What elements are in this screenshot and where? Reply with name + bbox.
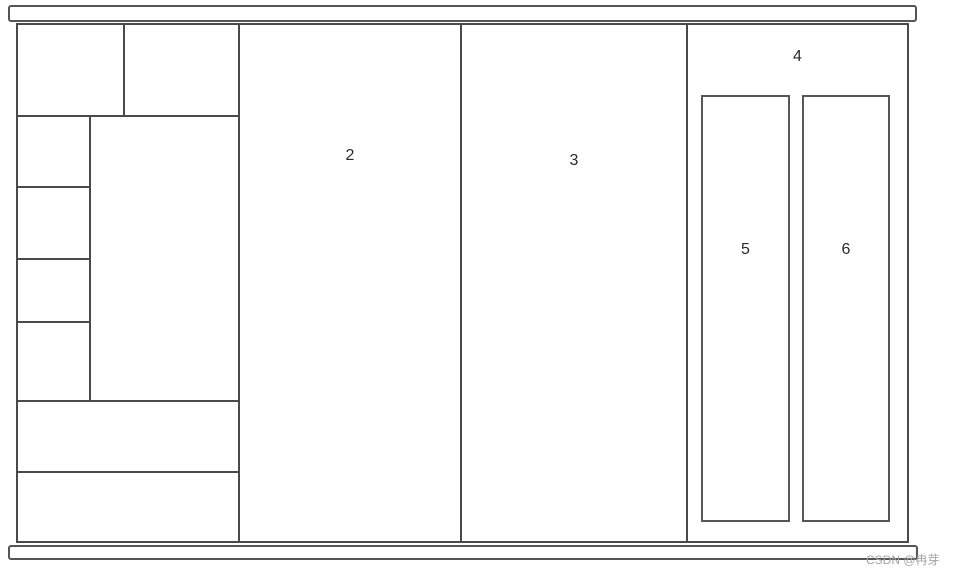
column-6-label: 6 (802, 242, 890, 258)
inner-column-6 (802, 95, 890, 522)
region-3-label: 3 (460, 153, 688, 169)
top-rail (8, 5, 917, 22)
shelf-box-2 (16, 186, 91, 260)
shelf-box-1 (16, 115, 91, 188)
region-2-panel (238, 23, 462, 543)
layout-diagram: 2 3 4 5 6 CSDN @冉芽 (0, 0, 957, 575)
shelf-box-3 (16, 258, 91, 323)
shelf-box-4 (16, 321, 91, 402)
column-5-label: 5 (701, 242, 790, 258)
region-2-label: 2 (238, 148, 462, 164)
region-4-label: 4 (686, 49, 909, 65)
region-3-panel (460, 23, 688, 543)
compartment-top-left (16, 23, 125, 117)
compartment-top-right (123, 23, 240, 117)
drawer-strip-2 (16, 471, 240, 543)
inner-column-5 (701, 95, 790, 522)
watermark-text: CSDN @冉芽 (866, 551, 940, 568)
drawer-strip-1 (16, 400, 240, 473)
bottom-rail (8, 545, 918, 560)
compartment-large (89, 115, 240, 402)
